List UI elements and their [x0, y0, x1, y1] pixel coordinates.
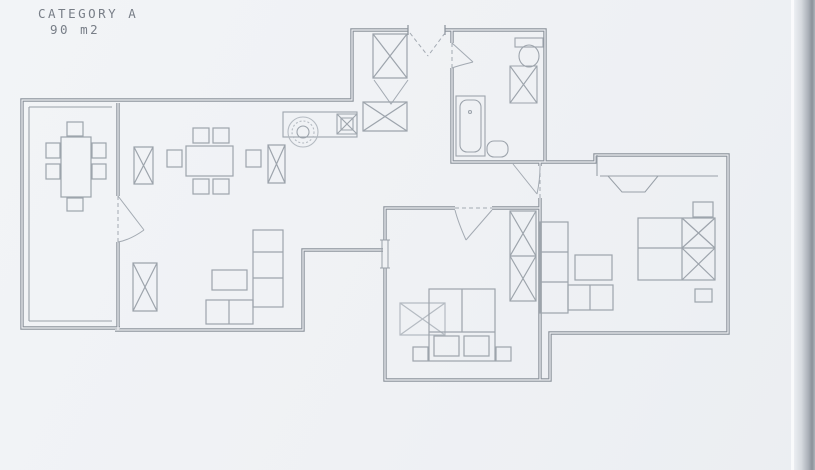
bed-headboard-x-marks [682, 218, 715, 280]
nightstand [693, 202, 713, 217]
bedroom-middle-window [380, 240, 390, 268]
tv-cabinet-icon [133, 263, 157, 311]
terrace-chair [92, 164, 106, 179]
scanned-floor-plan-page: CATEGORY A 90 m2 [0, 0, 815, 470]
shelf-unit-icon [540, 222, 568, 313]
shelf-unit-outline [540, 222, 568, 313]
sofa-l-shaped [206, 230, 283, 324]
terrace-chair [46, 164, 60, 179]
shelf-unit-dividers [540, 252, 568, 282]
bathtub-inner [460, 100, 481, 152]
dining-chair [213, 179, 229, 194]
bathtub-icon [456, 96, 485, 156]
stove-unit-icon [337, 114, 357, 134]
outer-walls [22, 30, 728, 380]
entrance-hall-furniture [363, 34, 407, 131]
door-jamb-stubs [408, 25, 445, 35]
floor-plan-drawing [0, 0, 815, 470]
dining-chair [167, 150, 182, 167]
bathroom-furniture [456, 38, 543, 157]
double-bed-icon [429, 289, 495, 361]
radiator-icon [134, 147, 153, 184]
dining-chair [246, 150, 261, 167]
toilet-tank [515, 38, 543, 47]
terrace-chair [46, 143, 60, 158]
double-bed-icon [638, 218, 715, 280]
terrace-table [61, 137, 91, 197]
radiator-icon [268, 145, 285, 183]
bedroom-right-furniture [540, 202, 715, 313]
terrace-chair [92, 143, 106, 158]
dining-table [186, 146, 233, 176]
nightstand [695, 289, 712, 302]
dining-chair [213, 128, 229, 143]
toilet-bowl [519, 45, 539, 67]
outer-walls-core [22, 30, 728, 380]
sofa-chaise [253, 230, 283, 307]
hall-closet-icon [373, 34, 407, 78]
bed-pillow [434, 336, 459, 356]
door-leaves [118, 43, 540, 242]
kitchen-furniture [283, 112, 357, 147]
dressing-table-icon [400, 303, 445, 335]
dresser-icon [568, 285, 613, 310]
wardrobe-x-marks [510, 211, 536, 301]
desk [575, 255, 612, 280]
terrace-inner-wall [29, 107, 112, 321]
bed-pillow [464, 336, 489, 356]
hall-wardrobe-icon [363, 102, 407, 131]
dining-chair [193, 179, 209, 194]
washbasin-icon [487, 141, 508, 157]
scan-page-edge-shadow [794, 0, 815, 470]
coffee-table [212, 270, 247, 290]
dining-chair [193, 128, 209, 143]
terrace-chair [67, 122, 83, 136]
sofa-chaise-cushion-lines [253, 252, 283, 278]
terrace-chair [67, 198, 83, 211]
nightstand [496, 347, 511, 361]
toilet-icon [515, 38, 543, 67]
bed-outline [638, 218, 715, 280]
bedroom-middle-furniture [400, 211, 536, 361]
bathtub-drain [469, 111, 472, 114]
bedroom-right-inner-wall [597, 155, 718, 176]
living-room-furniture [133, 128, 285, 324]
nightstand [413, 347, 428, 361]
bedroom-right-window [608, 176, 658, 192]
shower-cabinet-icon [510, 66, 537, 103]
bed-inner-lines [638, 218, 715, 280]
terrace-furniture [46, 122, 106, 211]
windows [380, 176, 658, 268]
kitchen-sink-basin [297, 126, 309, 138]
bed-inner-lines [429, 289, 495, 332]
kitchen-sink-icon [292, 121, 314, 143]
wardrobe-icon [510, 211, 536, 301]
